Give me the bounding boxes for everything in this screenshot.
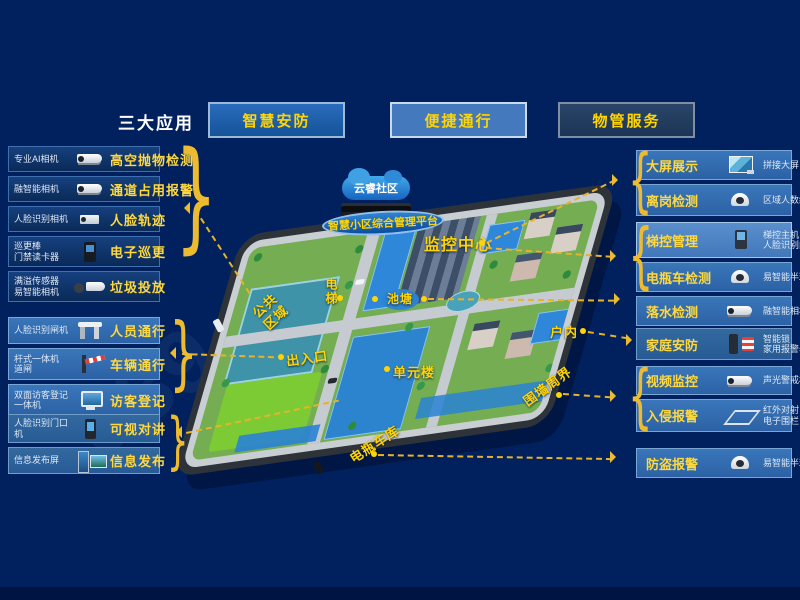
connector-dot xyxy=(556,392,562,398)
connector-dot xyxy=(371,451,377,457)
info-screen-icon xyxy=(73,449,107,473)
arrow-icon xyxy=(184,202,190,214)
feature-row-info-publish: 信息发布屏 信息发布 xyxy=(8,447,160,474)
device-label: 区域人数统计 xyxy=(763,195,800,205)
device-label: 杆式一体机 道闸 xyxy=(14,354,70,375)
feature-label: 梯控管理 xyxy=(642,231,720,250)
dome-camera-icon xyxy=(723,265,757,289)
device-label: 梯控主机 人脸识别门禁 xyxy=(763,230,800,251)
connector-dot xyxy=(421,296,427,302)
arrow-icon xyxy=(610,250,616,262)
connector-dot xyxy=(580,328,586,334)
cloud-badge: 云睿社区 xyxy=(342,176,410,200)
bullet-camera-icon xyxy=(73,147,107,171)
villa xyxy=(510,252,543,282)
dome-camera-icon xyxy=(723,451,757,475)
feature-label: 家庭安防 xyxy=(642,335,720,354)
feature-label: 视频监控 xyxy=(642,371,720,390)
connector-dot xyxy=(372,296,378,302)
visitor-kiosk-icon xyxy=(73,388,107,412)
connector-dot xyxy=(278,354,284,360)
device-label: 信息发布屏 xyxy=(14,455,70,465)
dome-camera-icon xyxy=(723,188,757,212)
feature-label: 落水检测 xyxy=(642,302,720,321)
feature-label: 人员通行 xyxy=(110,321,166,340)
map-label-indoor: 户内 xyxy=(550,322,578,341)
lock-alarm-icon xyxy=(723,332,757,356)
feature-label: 访客登记 xyxy=(110,391,166,410)
device-label: 专业AI相机 xyxy=(14,154,70,164)
device-label: 巡更棒 门禁读卡器 xyxy=(14,241,70,262)
tab-convenient-access[interactable]: 便捷通行 xyxy=(390,102,527,138)
feature-label: 信息发布 xyxy=(110,451,166,470)
arrow-icon xyxy=(626,334,632,346)
connector-dot xyxy=(479,240,485,246)
villa xyxy=(524,209,557,239)
feature-row-channel-occupancy: 融智能相机 通道占用报警 xyxy=(8,176,160,202)
feature-row-face-track: 人脸识别相机 人脸轨迹 xyxy=(8,206,160,232)
video-wall-icon xyxy=(723,153,757,177)
connector-dashed-line xyxy=(563,393,611,398)
feature-row-off-post-detect: 离岗检测 区域人数统计 xyxy=(636,184,792,216)
bullet-camera-icon xyxy=(723,299,757,323)
feature-row-visitor-registration: 双面访客登记 一体机 访客登记 xyxy=(8,384,160,416)
device-label: 融智能相机 xyxy=(14,184,70,194)
feature-row-ebike-detect: 电瓶车检测 易智能半球 xyxy=(636,262,792,292)
device-label: 智能锁 家用报警器 xyxy=(763,334,800,355)
car xyxy=(312,460,324,475)
villa xyxy=(550,224,583,254)
device-label: 红外对射 电子围栏 xyxy=(763,405,800,426)
device-label: 人脸识别闸机 xyxy=(14,325,70,335)
map-label-unit-building: 单元楼 xyxy=(393,362,435,381)
sensor-camera-icon xyxy=(73,275,107,299)
footer-bar xyxy=(0,587,800,600)
device-label: 满溢传感器 易智能相机 xyxy=(14,276,70,297)
feature-label: 电瓶车检测 xyxy=(642,268,720,287)
device-label: 双面访客登记 一体机 xyxy=(14,390,70,411)
arrow-icon xyxy=(176,426,182,438)
arrow-icon xyxy=(614,293,620,305)
feature-row-video-surveillance: 视频监控 声光警戒相机 xyxy=(636,366,792,395)
connector-dashed-line xyxy=(378,454,612,460)
device-label: 易智能半球 xyxy=(763,272,800,282)
feature-row-elevator-control: 梯控管理 梯控主机 人脸识别门禁 xyxy=(636,222,792,258)
feature-label: 通道占用报警 xyxy=(110,180,194,199)
connector-dashed-line xyxy=(588,331,628,339)
feature-label: 离岗检测 xyxy=(642,191,720,210)
perimeter-fence-icon xyxy=(723,404,757,428)
barrier-gate-icon xyxy=(73,352,107,376)
feature-label: 入侵报警 xyxy=(642,406,720,425)
map-label-elevator: 电梯 xyxy=(323,278,340,306)
tab-smart-security[interactable]: 智慧安防 xyxy=(208,102,345,138)
bullet-camera-icon xyxy=(73,177,107,201)
feature-row-intrusion-alarm: 入侵报警 红外对射 电子围栏 xyxy=(636,399,792,432)
arrow-icon xyxy=(170,347,176,359)
bullet-camera-icon xyxy=(723,369,757,393)
device-label: 人脸识别相机 xyxy=(14,214,70,224)
smart-community-infographic: 339 2020-09 三大应用 智慧安防 便捷通行 物管服务 专业AI相机 高… xyxy=(0,0,800,600)
feature-row-electronic-patrol: 巡更棒 门禁读卡器 电子巡更 xyxy=(8,236,160,267)
feature-label: 垃圾投放 xyxy=(110,277,166,296)
connector-dot xyxy=(384,366,390,372)
cloud-label: 云睿社区 xyxy=(354,180,398,196)
feature-label: 电子巡更 xyxy=(110,242,166,261)
map-label-pond: 池塘 xyxy=(381,289,419,310)
card-reader-icon xyxy=(73,240,107,264)
trees xyxy=(253,253,263,263)
turnstile-gate-icon xyxy=(73,319,107,343)
feature-label: 车辆通行 xyxy=(110,355,166,374)
box-camera-icon xyxy=(73,207,107,231)
feature-row-big-screen: 大屏展示 拼接大屏 xyxy=(636,150,792,180)
arrow-icon xyxy=(612,174,618,186)
device-label: 人脸识别门口 机 xyxy=(14,418,70,439)
feature-row-drowning-detect: 落水检测 融智能相机 xyxy=(636,296,792,326)
device-label: 声光警戒相机 xyxy=(763,375,800,385)
arrow-icon xyxy=(610,390,616,402)
page-title: 三大应用 xyxy=(118,109,194,134)
arrow-icon xyxy=(610,451,616,463)
door-station-icon xyxy=(73,417,107,441)
feature-label: 人脸轨迹 xyxy=(110,210,166,229)
feature-row-vehicle-access: 杆式一体机 道闸 车辆通行 xyxy=(8,348,160,380)
feature-row-high-altitude-throw: 专业AI相机 高空抛物检测 xyxy=(8,146,160,172)
feature-label: 高空抛物检测 xyxy=(110,150,194,169)
device-label: 易智能半球 xyxy=(763,458,800,468)
connector-dot xyxy=(337,295,343,301)
device-label: 拼接大屏 xyxy=(763,160,800,170)
feature-row-antitheft-alarm: 防盗报警 易智能半球 xyxy=(636,448,792,478)
feature-row-home-security: 家庭安防 智能锁 家用报警器 xyxy=(636,328,792,360)
tab-property-service[interactable]: 物管服务 xyxy=(558,102,695,138)
device-label: 融智能相机 xyxy=(763,306,800,316)
feature-row-video-intercom: 人脸识别门口 机 可视对讲 xyxy=(8,414,160,443)
face-terminal-icon xyxy=(723,228,757,252)
feature-label: 可视对讲 xyxy=(110,419,166,438)
feature-label: 大屏展示 xyxy=(642,156,720,175)
feature-row-personnel-access: 人脸识别闸机 人员通行 xyxy=(8,317,160,344)
villa xyxy=(467,320,500,350)
feature-label: 防盗报警 xyxy=(642,454,720,473)
feature-row-garbage-drop: 满溢传感器 易智能相机 垃圾投放 xyxy=(8,271,160,302)
